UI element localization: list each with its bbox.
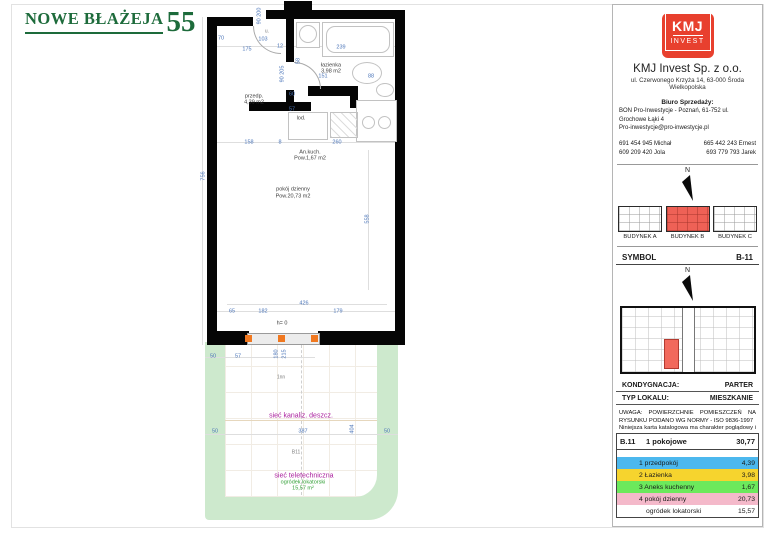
room-area: 4,39 [742,460,755,467]
phone-entry: 691 454 945 Michał [619,140,688,149]
sales-office-label: Biuro Sprzedaży: [613,99,762,106]
overview-corridor [682,308,695,372]
building-c-label: BUDYNEK C [713,234,757,240]
plan-label: u. [265,30,269,35]
symbol-value: B-11 [736,253,753,262]
plan-label: 387 [298,429,307,435]
compass-buildings: N [613,167,762,204]
table-row: 4 pokój dzienny 20,73 [617,493,758,505]
plan-label: 12 [277,44,283,50]
catalog-page: NOWE BŁAŻEJA 55 [0,0,768,540]
compass-overview: N [613,267,762,304]
building-a-label: BUDYNEK A [618,234,662,240]
plan-label: 90 205 [280,66,286,83]
table-row: ogródek lokatorski 15,57 [617,505,758,517]
unit-id: B.11 [620,437,646,446]
plan-label: 1nn [277,376,285,381]
panel-divider [617,164,758,165]
plan-label: 57 [235,354,241,360]
plan-label: 215 [282,349,288,358]
wall-bottom-left [207,331,249,345]
wall-top-right [266,10,405,19]
north-label: N [613,267,762,274]
room-label: 1 przedpokój [639,460,742,467]
stove-fixture [330,112,358,138]
typ-lokalu-label: TYP LOKALU: [622,395,669,402]
company-name: KMJ Invest Sp. z o.o. [613,63,762,75]
table-row: 3 Aneks kuchenny 1,67 [617,481,758,493]
building-b: BUDYNEK B [666,206,710,240]
wall-left [207,17,217,345]
plan-label: 404 [350,424,356,433]
kmj-logo-inner: KMJ INVEST [665,13,711,51]
logo-divider [673,35,703,36]
room-area: 3,98 [742,472,755,479]
plan-label: Pow.1,67 m2 [294,156,326,162]
plan-label: 50 [210,354,216,360]
table-spacer [617,450,758,457]
symbol-label: SYMBOL [622,253,656,262]
plan-label: Pow.20,73 m2 [276,194,311,200]
unit-type: 1 pokojowe [646,437,736,446]
sales-office-address: BON Pro-Inwestycje - Poznań, 61-752 ul. … [619,107,756,124]
company-address: ul. Czerwonego Krzyża 14, 63-000 Środa W… [613,77,762,91]
phone-list: 691 454 945 Michał 665 442 243 Ernest 60… [613,140,762,158]
building-a-plan [618,206,662,232]
unit-total-area: 30,77 [736,437,755,446]
bathroom-door-arc [294,62,321,89]
overview-unit-highlight [664,339,679,369]
plan-label: 8 [278,140,281,146]
room-label: 4 pokój dzienny [639,496,738,503]
building-b-label: BUDYNEK B [666,234,710,240]
fridge-nook [288,112,328,140]
plan-label: 151 [318,74,327,80]
table-row: 1 przedpokój 4,39 [617,457,758,469]
plan-label: 756 [201,171,207,180]
plan-label: 179 [333,309,342,315]
logo-text-kmj: KMJ [672,19,703,33]
window-marker [311,335,318,342]
phone-entry: 693 779 793 Jarek [688,149,757,158]
window-marker [278,335,285,342]
dimension-line [217,311,395,312]
plan-label: 65 [229,309,235,315]
plan-label: 15,57 m² [292,486,314,492]
room-area: 15,57 [738,508,755,515]
plan-label: lod. [297,116,306,122]
plan-label: B11 [292,451,301,456]
wall-top-left [207,17,253,26]
kondygnacja-value: PARTER [725,382,753,389]
plan-label: 88 [368,74,374,80]
unit-area-table: B.11 1 pokojowe 30,77 1 przedpokój 4,39 … [616,433,759,518]
table-row: 2 Łazienka 3,98 [617,469,758,481]
toilet-fixture [376,83,394,97]
plan-label: h= 0 [277,321,288,327]
wall-right [395,10,405,345]
sales-office-email: Pro-inwestycje@pro-inwestycje.pl [619,124,756,133]
north-label: N [613,167,762,174]
typ-lokalu-value: MIESZKANIE [710,395,753,402]
buildings-row: BUDYNEK A BUDYNEK B BUDYNEK C [613,204,762,240]
dimension-line [205,357,315,358]
disclaimer-line-1: UWAGA: POWIERZCHNIE POMIESZCZEŃ NA RYSUN… [619,410,756,425]
logo-text-invest: INVEST [670,38,704,45]
kmj-logo: KMJ INVEST [662,13,714,58]
room-label: 2 Łazienka [639,472,742,479]
kitchen-sink-right [378,116,391,129]
plan-label: 60 [289,92,295,98]
plan-label: 50 [212,429,218,435]
building-c: BUDYNEK C [713,206,757,240]
building-a: BUDYNEK A [618,206,662,240]
room-area: 20,73 [738,496,755,503]
floor-overview-plan [620,306,756,374]
typ-lokalu-row: TYP LOKALU: MIESZKANIE [616,392,759,405]
plan-label: 70 [218,36,224,42]
info-panel: KMJ INVEST KMJ Invest Sp. z o.o. ul. Cze… [612,4,763,527]
kondygnacja-row: KONDYGNACJA: PARTER [616,379,759,392]
panel-divider [617,246,758,247]
utility-line [225,420,377,421]
north-arrow-icon [680,274,695,302]
plan-label: 57 [289,107,295,113]
plan-label: pokój dzienny [276,187,310,193]
washer-drum-icon [299,25,317,43]
plan-label: 558 [365,214,371,223]
north-arrow-icon [680,174,695,202]
room-area: 1,67 [742,484,755,491]
window-marker [245,335,252,342]
plan-label: 180 [274,349,280,358]
phone-entry: 609 209 420 Jola [619,149,688,158]
plan-label: 4,39 m2 [244,100,264,106]
plan-label: 90 200 [257,8,263,25]
building-b-plan-highlighted [666,206,710,232]
kondygnacja-label: KONDYGNACJA: [622,382,679,389]
wall-hall-bath [286,19,294,62]
plan-label: 50 [384,429,390,435]
plan-label: 260 [332,140,341,146]
plan-label: sieć kanaliz. deszcz. [269,413,333,420]
phone-entry: 665 442 243 Ernest [688,140,757,149]
plan-label: 103 [258,37,267,43]
plan-label: 239 [336,45,345,51]
plan-label: 58 [296,58,302,64]
wall-shaft [284,1,312,11]
plan-label: 182 [258,309,267,315]
dimension-line [202,17,203,345]
symbol-row: SYMBOL B-11 [616,249,759,265]
room-label: 3 Aneks kuchenny [639,484,742,491]
plan-label: 158 [244,140,253,146]
wall-bottom-right [318,331,405,345]
plan-label: 175 [242,47,251,53]
kitchen-sink-left [362,116,375,129]
table-header: B.11 1 pokojowe 30,77 [617,434,758,450]
plan-label: 426 [299,301,308,307]
room-label: ogródek lokatorski [646,508,738,515]
building-c-plan [713,206,757,232]
